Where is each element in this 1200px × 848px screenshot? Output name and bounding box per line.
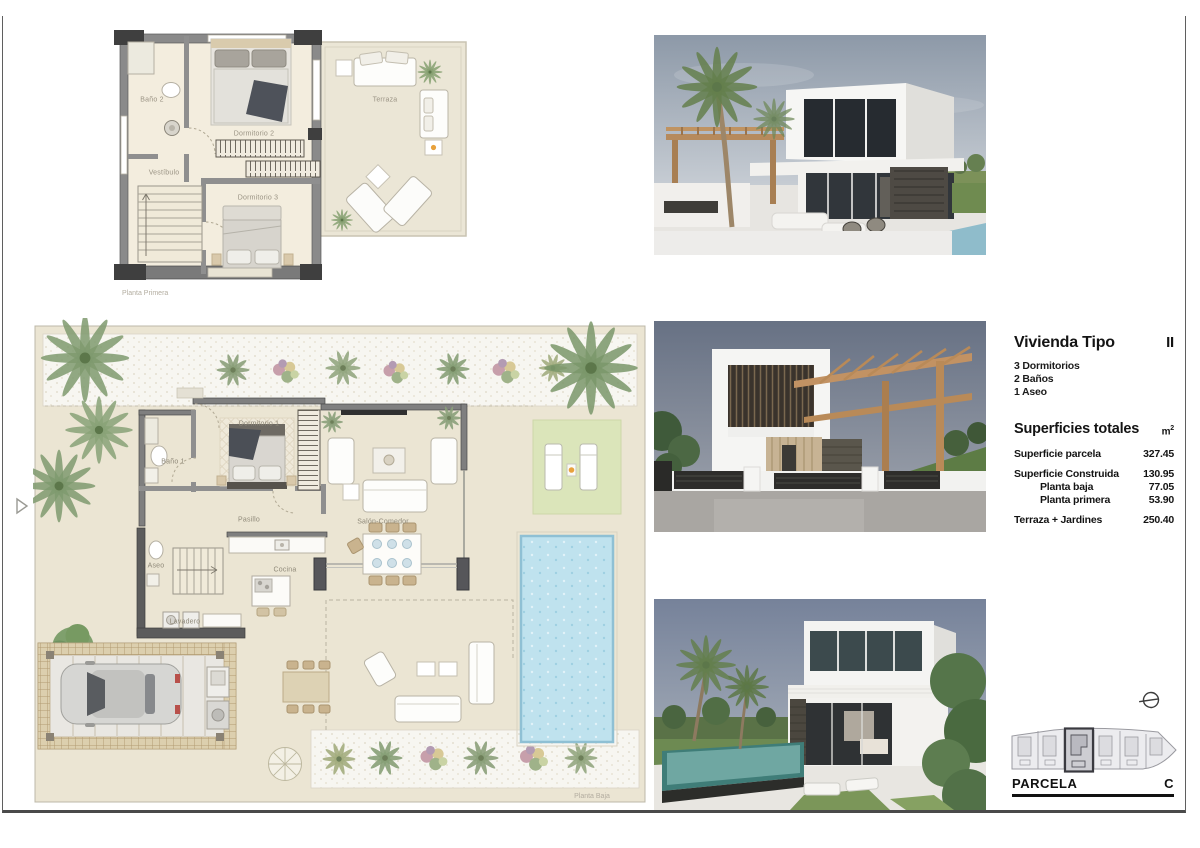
dwelling-type-number: II [1166,334,1174,351]
parcela-underline [1012,794,1174,797]
render-exterior-street [654,321,986,532]
lawn-area [533,420,621,514]
info-header: Vivienda Tipo II [1014,334,1174,352]
room-label-bano1: Baño 1 [161,459,184,466]
site-plan-diagram [1010,724,1180,776]
area-row-terraza-jardines: Terraza + Jardines250.40 [1014,514,1174,527]
bed-dorm3 [212,206,293,268]
room-label-pasillo: Pasillo [238,517,260,524]
room-label-salon: Salón-Comedor [357,519,409,526]
render-3-image [654,599,986,810]
render-exterior-pool [654,599,986,810]
north-arrow-icon [1138,688,1166,712]
dwelling-type-title: Vivienda Tipo [1014,334,1115,352]
room-label-dorm3: Dormitorio 3 [238,195,279,202]
highlighted-parcel [1065,729,1093,772]
areas-title: Superficies totales [1014,421,1139,437]
ground-floor-drawing [33,318,648,810]
caption-planta-baja: Planta Baja [574,793,610,800]
render-1-image [654,35,986,255]
room-label-aseo: Aseo [148,563,165,570]
plan-sheet: Baño 2 Vestíbulo Dormitorio 2 Dormitorio… [0,0,1200,848]
entry-arrow-icon [14,496,30,516]
parcela-letter: C [1164,776,1174,791]
area-row-planta-primera: Planta primera53.90 [1014,494,1174,507]
area-row-construida: Superficie Construida130.95 [1014,468,1174,481]
room-label-dorm2: Dormitorio 2 [234,131,275,138]
ground-floor-plan: Baño 1 Dormitorio 1 Pasillo Salón-Comedo… [33,318,648,810]
carport [38,643,236,749]
stairs-ground [173,548,223,594]
room-label-bano2: Baño 2 [140,97,163,104]
car [61,661,181,727]
room-label-dorm1: Dormitorio 1 [239,421,280,428]
parcela-caption: PARCELA C [1012,776,1174,791]
area-row-parcela: Superficie parcela327.45 [1014,448,1174,461]
feature-banos: 2 Baños [1014,373,1174,386]
room-label-lavadero: Lavadero [170,619,201,626]
room-label-vestibulo: Vestíbulo [149,170,180,177]
parcela-label: PARCELA [1012,776,1077,791]
upper-house [114,30,322,280]
feature-list: 3 Dormitorios 2 Baños 1 Aseo [1014,360,1174,399]
parcela-block: PARCELA C [1010,688,1180,806]
area-row-planta-baja: Planta baja77.05 [1014,481,1174,494]
render-2-image [654,321,986,532]
areas-unit: m2 [1162,425,1174,437]
render-exterior-front [654,35,986,255]
areas-header: Superficies totales m2 [1014,421,1174,437]
bed-dorm2 [211,39,291,125]
caption-planta-primera: Planta Primera [122,290,168,297]
room-label-cocina: Cocina [274,567,297,574]
first-floor-drawing [108,28,476,300]
first-floor-plan: Baño 2 Vestíbulo Dormitorio 2 Dormitorio… [108,28,476,300]
terrace-area [320,42,466,236]
room-label-terraza: Terraza [373,97,398,104]
info-panel: Vivienda Tipo II 3 Dormitorios 2 Baños 1… [1014,334,1174,527]
wardrobe-dorm1 [298,410,320,490]
feature-aseo: 1 Aseo [1014,386,1174,399]
areas-table: Superficie parcela327.45 Superficie Cons… [1014,448,1174,527]
pool [517,532,617,746]
feature-dormitorios: 3 Dormitorios [1014,360,1174,373]
bed-dorm1 [217,418,296,489]
stairs-upper [138,186,202,262]
